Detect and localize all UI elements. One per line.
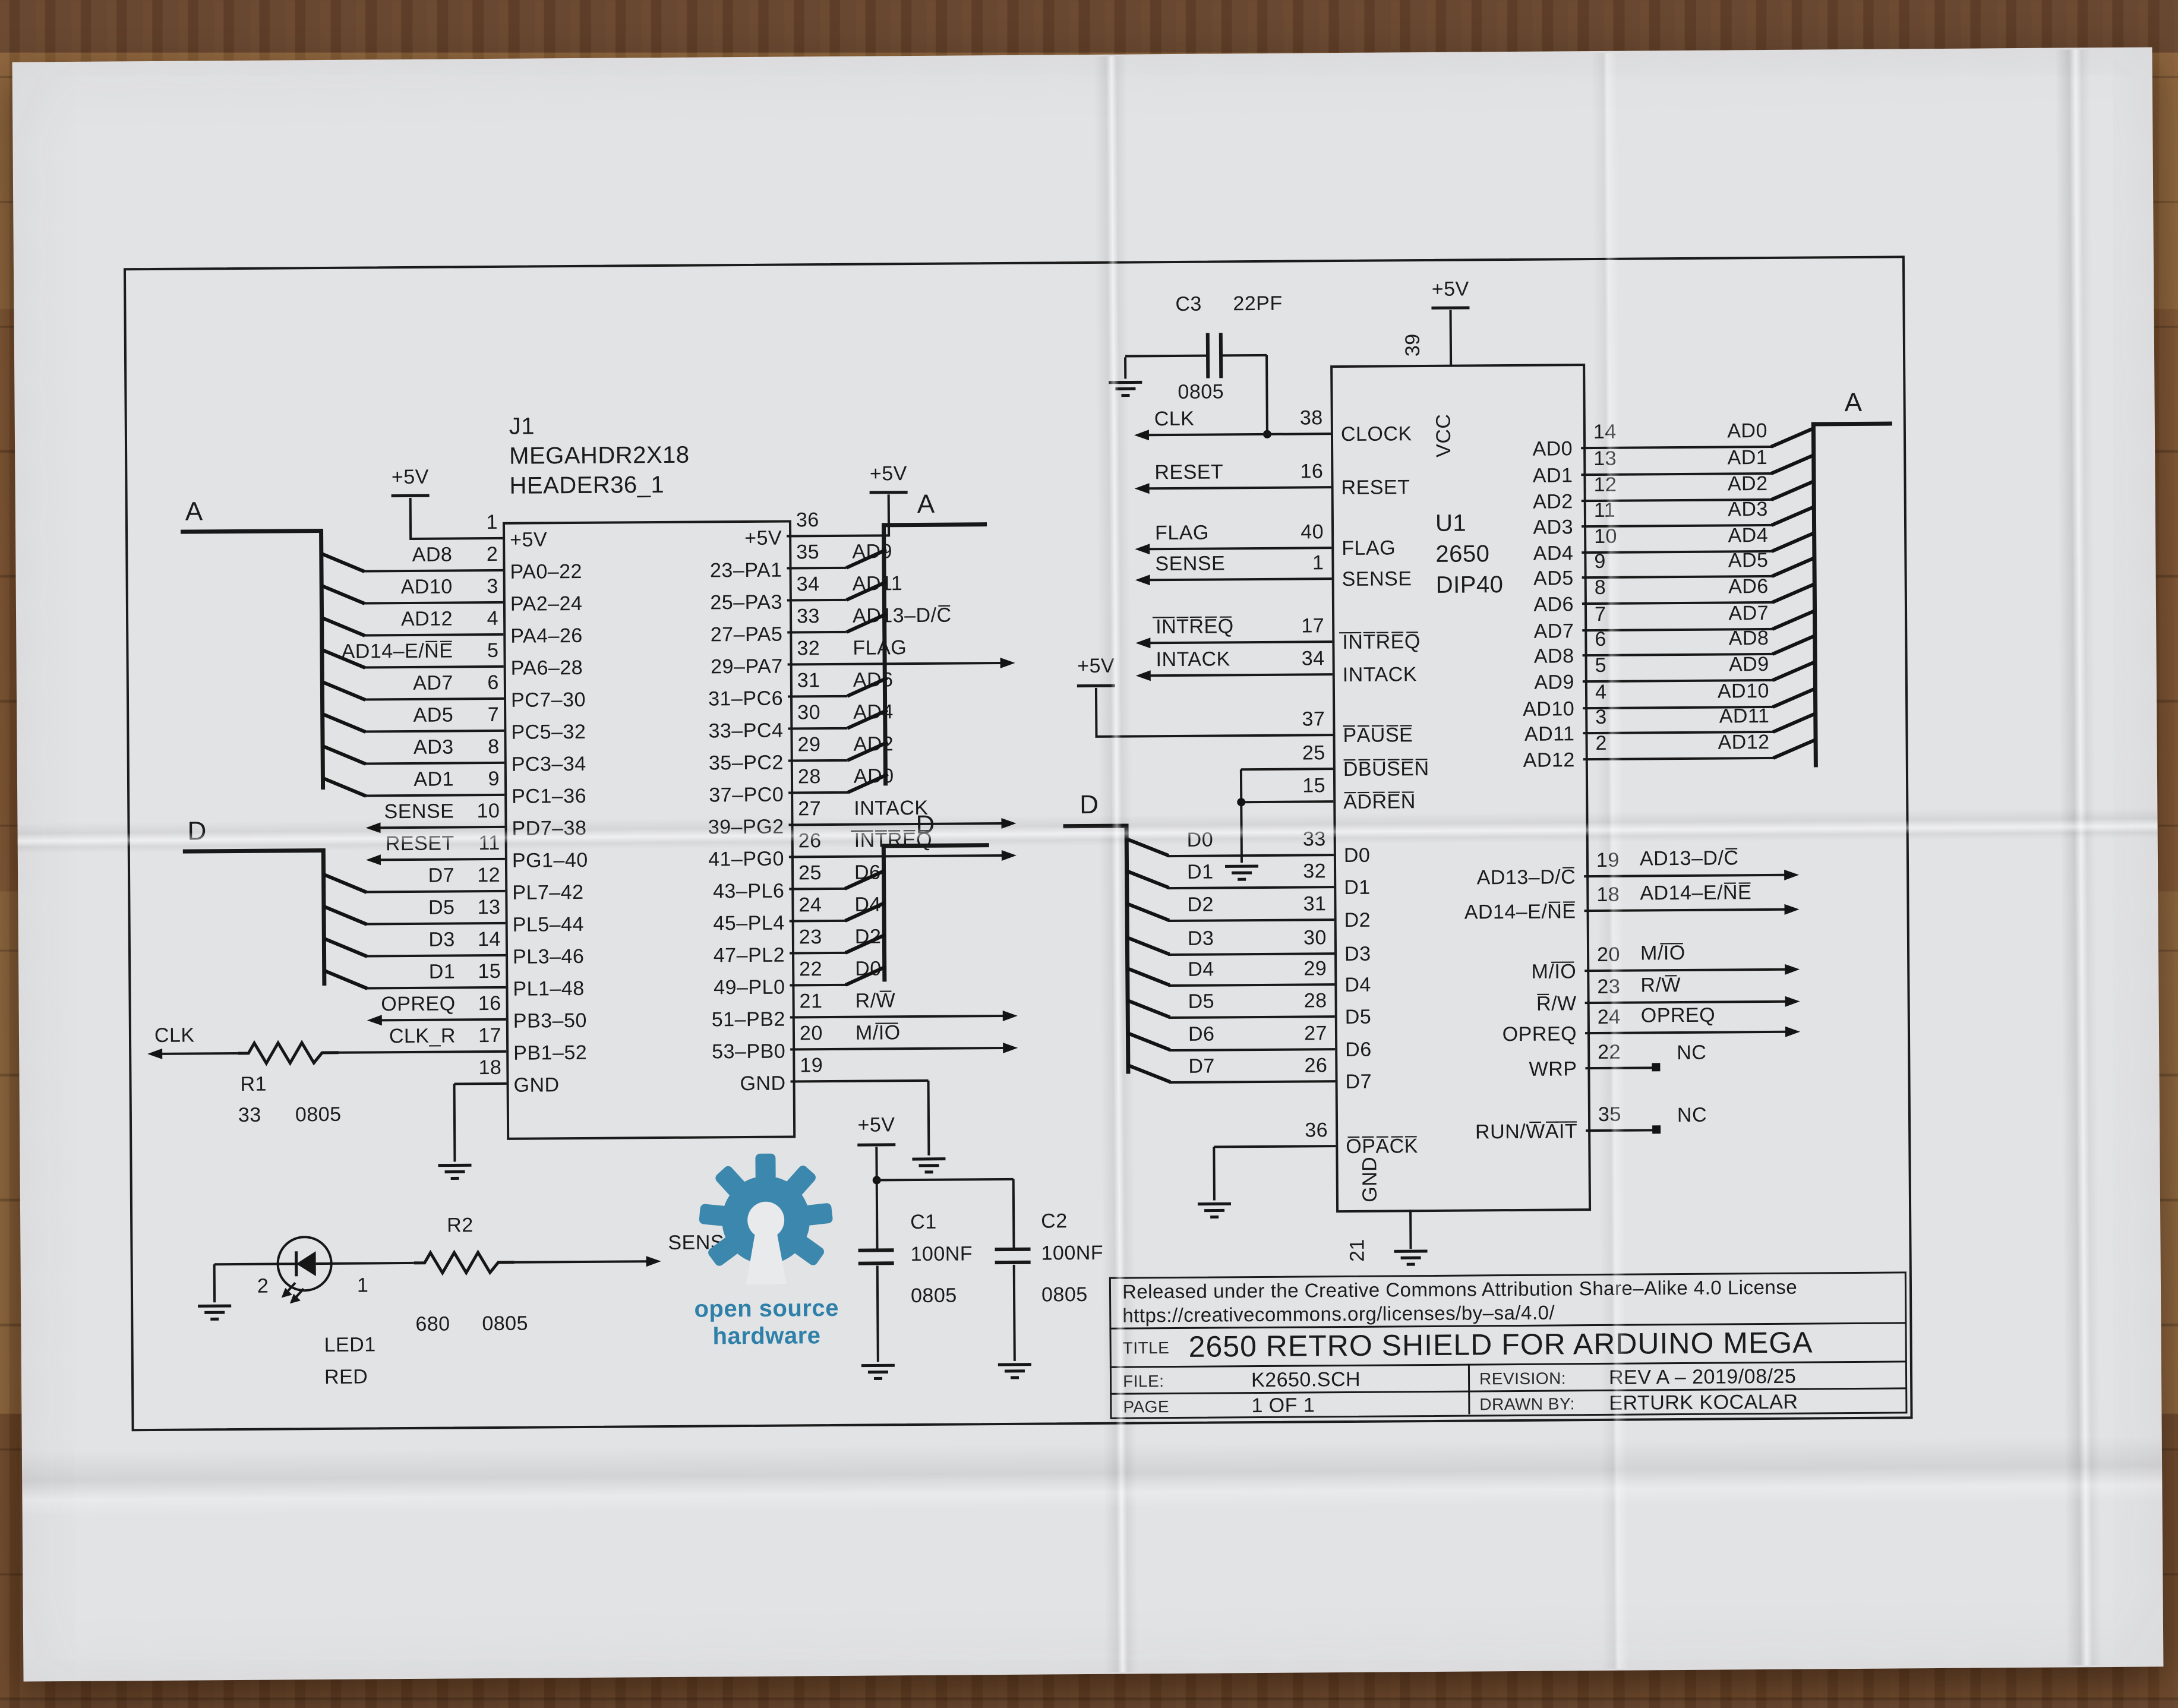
j1-row-12-left-pin-name: PL7–42: [512, 881, 584, 905]
title-label: TITLE: [1123, 1338, 1170, 1358]
j1-row-14-right-pin-name: 47–PL2: [602, 944, 785, 968]
j1-row-6-right-pin-number: 31: [797, 669, 820, 692]
u1-rpin-24-net-label: OPREQ: [1641, 1004, 1716, 1028]
u1-rpin-11-number: 11: [1594, 499, 1616, 522]
j1-row-18-wire-l: [454, 1082, 507, 1085]
led-gnd-symbol: [195, 1303, 233, 1327]
j1-row-17-left-pin-name: PB1–52: [513, 1041, 587, 1065]
r1-footprint: 0805: [295, 1103, 342, 1127]
j1-row-4-left-pin-number: 4: [449, 607, 498, 631]
u1-rpin-5-name: AD9: [1337, 671, 1574, 696]
u1-vcc-bar: [1431, 306, 1469, 309]
j1-row-16-right-pin-name: 51–PB2: [602, 1008, 785, 1033]
bus-d-label-left: D: [187, 816, 207, 847]
j1-row-9-left-pin-name: PC1–36: [512, 785, 586, 809]
j1-row-10-arrow-right: [1001, 818, 1016, 829]
u1-rpin-14-number: 14: [1593, 421, 1617, 444]
u1-rpin-6-net-label: AD8: [1628, 627, 1769, 651]
u1-lpin-30-number: 30: [1277, 926, 1327, 950]
r2-value: 680: [415, 1313, 450, 1336]
j1-row-8-left-net-label: AD3: [314, 735, 453, 760]
j1-row-14-left-net-label: D3: [315, 928, 455, 952]
u1-lpin-31-net-label: D2: [1187, 894, 1214, 917]
j1-row-5-right-pin-name: 29–PA7: [600, 655, 783, 680]
j1-row-14-left-pin-name: PL3–46: [513, 945, 585, 969]
c3-ref: C3: [1175, 293, 1202, 316]
schematic-title: 2650 RETRO SHIELD FOR ARDUINO MEGA: [1188, 1325, 1813, 1364]
j1-plus5v-right-drop: [888, 494, 890, 536]
u1-rpin-2-number: 2: [1595, 732, 1607, 755]
u1-gnd-symbol: [1392, 1249, 1430, 1273]
j1-row-15-left-pin-number: 15: [451, 960, 501, 984]
c2-ref: C2: [1041, 1210, 1068, 1233]
u1-rpin-7-number: 7: [1595, 603, 1606, 626]
j1-row-2-wire-r: [787, 567, 846, 570]
u1-rpin-35-nc-label: NC: [1677, 1104, 1707, 1127]
j1-plus5v-left-drop: [409, 498, 412, 540]
u1-rpin-4-net-label: AD10: [1629, 680, 1769, 704]
j1-row-16-right-net-label: R/W̅: [855, 989, 895, 1013]
j1-gnd-left-symbol: [435, 1163, 474, 1186]
j1-row-10-left-pin-name: PD7–38: [512, 817, 586, 841]
j1-gnd-right-symbol: [910, 1157, 948, 1180]
r1-net-in-label: CLK: [154, 1024, 195, 1048]
drawn-by-label: DRAWN BY:: [1479, 1394, 1575, 1414]
j1-row-17-left-net-label: CLK_R: [316, 1024, 456, 1049]
bus-a-u1-right-stub: [1811, 422, 1892, 427]
u1-rpin-9-name: AD5: [1336, 567, 1574, 592]
j1-row-15-right-pin-number: 22: [799, 958, 822, 981]
title-block-divider: [1468, 1364, 1470, 1415]
j1-row-16-right-pin-number: 21: [799, 990, 822, 1013]
plus5v-label-j1-left: +5V: [374, 466, 446, 490]
u1-rpin-11-net-label: AD3: [1628, 498, 1768, 522]
j1-row-13-wire-r: [790, 920, 847, 923]
u1-rpin-20-number: 20: [1597, 943, 1620, 967]
c3-footprint: 0805: [1178, 380, 1224, 404]
u1-rpin-24-name: OPREQ: [1339, 1022, 1577, 1047]
u1-lpin-37-number: 37: [1275, 708, 1325, 731]
u1-lpin-33-name: D0: [1344, 844, 1371, 867]
license-line2: https://creativecommons.org/licenses/by–…: [1122, 1302, 1555, 1327]
u1-rpin-6-number: 6: [1595, 628, 1606, 651]
u1-lpin-34-number: 34: [1274, 647, 1324, 671]
j1-row-11-left-net-label: RESET: [315, 832, 454, 856]
j1-row-18-right-pin-name: GND: [602, 1072, 785, 1097]
u1-rpin-23-number: 23: [1597, 975, 1620, 999]
j1-row-17-arrow-right: [1003, 1043, 1018, 1053]
j1-row-6-left-pin-name: PC7–30: [511, 689, 586, 712]
u1-gnd-wire: [1409, 1210, 1412, 1249]
u1-rpin-11-name: AD3: [1336, 516, 1573, 541]
j1-value: MEGAHDR2X18: [509, 441, 690, 470]
bus-a-j1-right-stub: [882, 522, 987, 527]
j1-row-2-right-pin-number: 35: [796, 541, 819, 564]
j1-row-11-right-net-label: I̅N̅T̅R̅E̅Q̅: [854, 829, 933, 853]
u1-lpin-33-number: 33: [1276, 828, 1326, 851]
j1-row-3-right-pin-number: 34: [797, 573, 820, 596]
j1-row-15-left-pin-name: PL1–48: [513, 977, 585, 1001]
u1-rpin-35-number: 35: [1598, 1103, 1621, 1126]
file-label: FILE:: [1123, 1372, 1164, 1391]
license-line1: Released under the Creative Commons Attr…: [1122, 1276, 1797, 1303]
c2-top-drop: [1012, 1179, 1015, 1249]
bus-a-label-left: A: [185, 497, 203, 527]
oshw-logo-text-line1: open source: [668, 1295, 864, 1323]
j1-row-12-left-net-label: D7: [315, 864, 454, 888]
u1-rpin-22-name: WRP: [1339, 1057, 1577, 1082]
u1-rpin-5-net-label: AD9: [1629, 653, 1769, 677]
u1-rpin-20-arrow-right: [1785, 964, 1800, 975]
j1-row-5-left-net-label: AD14–E/N̅E̅: [313, 639, 453, 664]
u1-rpin-8-name: AD6: [1336, 593, 1574, 618]
bus-a-label-j1-right: A: [917, 490, 935, 520]
j1-row-14-left-pin-number: 14: [451, 928, 501, 952]
bus-a-label-u1-right: A: [1844, 388, 1862, 418]
j1-row-14-wire-r: [790, 952, 847, 955]
j1-plus5v-right-bar: [870, 491, 908, 494]
j1-row-11-arrow-right: [1002, 850, 1017, 861]
adren-junction-dot: [1237, 798, 1245, 806]
j1-row-9-left-pin-number: 9: [450, 768, 500, 791]
u1-rpin-6-name: AD8: [1336, 645, 1574, 670]
u1-rpin-7-name: AD7: [1336, 620, 1574, 645]
drawn-by-value: ERTURK KOCALAR: [1609, 1391, 1798, 1415]
j1-row-10-left-net-label: SENSE: [314, 800, 454, 824]
sense-arrow-right: [646, 1256, 661, 1267]
j1-row-11-left-pin-name: PG1–40: [512, 849, 588, 873]
u1-lpin-26-net-label: D7: [1188, 1055, 1215, 1078]
j1-footprint: HEADER36_1: [509, 471, 664, 500]
u1-rpin-35-name: RUN/W̅A̅I̅T̅: [1340, 1120, 1577, 1145]
u1-rpin-3-number: 3: [1595, 706, 1607, 729]
u1-rpin-18-number: 18: [1596, 883, 1620, 907]
u1-rpin-7-net-label: AD7: [1628, 602, 1769, 626]
j1-row-5-left-pin-number: 5: [449, 639, 498, 663]
u1-lpin-29-net-label: D4: [1188, 958, 1214, 981]
u1-rpin-2-net-label: AD12: [1629, 731, 1769, 755]
j1-row-5-arrow-right: [1000, 658, 1015, 668]
oshw-logo-icon: [693, 1147, 839, 1293]
plus5v-label-u1-vcc: +5V: [1415, 277, 1486, 301]
pause-plus5v-bar: [1077, 684, 1115, 687]
fold-crease-horizontal-bottom: [22, 1436, 2163, 1516]
u1-rpin-2-name: AD12: [1337, 749, 1575, 774]
led1-symbol-icon: [269, 1228, 346, 1306]
u1-lpin-28-net-label: D5: [1188, 990, 1214, 1014]
u1-rpin-5-number: 5: [1595, 654, 1607, 677]
u1-gnd-pin-name: GND: [1358, 1157, 1382, 1202]
u1-rpin-18-arrow-right: [1784, 904, 1799, 915]
opack-gnd-symbol: [1195, 1201, 1233, 1225]
j1-row-5-right-net-label: FLAG: [853, 636, 907, 660]
u1-rpin-10-number: 10: [1594, 525, 1617, 548]
u1-lpin-32-number: 32: [1276, 860, 1326, 883]
u1-rpin-9-net-label: AD5: [1628, 549, 1768, 573]
j1-row-10-right-pin-number: 27: [798, 797, 821, 820]
u1-rpin-13-net-label: AD1: [1627, 446, 1767, 471]
j1-row-3-left-pin-number: 3: [449, 575, 498, 599]
u1-rpin-12-name: AD2: [1336, 490, 1573, 515]
u1-rpin-19-net-label: AD13–D/C̅: [1640, 847, 1739, 870]
u1-gnd-pin-number: 21: [1346, 1239, 1369, 1262]
j1-row-17-right-pin-number: 20: [800, 1022, 823, 1045]
j1-row-11-right-pin-name: 41–PG0: [601, 848, 784, 872]
u1-lpin-38-number: 38: [1273, 406, 1323, 430]
led-gnd-drop: [213, 1264, 216, 1302]
j1-row-12-right-pin-number: 25: [798, 861, 822, 885]
c1-footprint: 0805: [911, 1284, 957, 1308]
u1-rpin-14-net-label: AD0: [1627, 419, 1767, 444]
j1-row-15-left-net-label: D1: [315, 960, 455, 984]
u1-rpin-3-name: AD11: [1337, 722, 1574, 747]
j1-row-18-left-pin-name: GND: [513, 1074, 559, 1097]
j1-row-13-left-net-label: D5: [315, 896, 454, 920]
u1-lpin-15-name: A̅D̅R̅E̅N̅: [1343, 790, 1416, 814]
j1-row-4-right-pin-number: 33: [797, 605, 820, 628]
u1-rpin-35-wire: [1586, 1129, 1653, 1132]
j1-row-4-wire-r: [787, 631, 847, 634]
u1-lpin-28-number: 28: [1277, 989, 1327, 1013]
u1-lpin-16-net-label: RESET: [1154, 460, 1223, 484]
j1-row-8-wire-r: [788, 759, 848, 762]
j1-row-4-left-net-label: AD12: [313, 607, 453, 632]
j1-row-2-right-pin-name: 23–PA1: [599, 559, 782, 583]
j1-row-4-right-pin-name: 27–PA5: [599, 623, 782, 648]
j1-row-7-wire-r: [788, 727, 847, 730]
c2-plate-top: [995, 1248, 1030, 1251]
j1-row-10-left-pin-number: 10: [450, 800, 500, 823]
u1-rpin-14-name: AD0: [1335, 437, 1573, 462]
wiring-layer: 1+5V+5V36AD82PA0–2223–PA135AD9AD103PA2–2…: [0, 0, 2172, 8]
j1-row-5-left-pin-name: PA6–28: [511, 656, 583, 680]
page-value: 1 OF 1: [1251, 1394, 1315, 1417]
plus5v-label-pause: +5V: [1060, 654, 1132, 678]
j1-row-4-left-pin-name: PA4–26: [510, 624, 583, 648]
j1-row-18-right-pin-number: 19: [800, 1054, 823, 1077]
j1-row-8-left-pin-number: 8: [449, 735, 499, 759]
u1-lpin-30-net-label: D3: [1188, 927, 1214, 951]
c1-plate-bottom: [858, 1261, 894, 1265]
led-gnd-wire: [214, 1263, 279, 1266]
u1-lpin-17-number: 17: [1274, 614, 1324, 638]
j1-row-14-right-pin-number: 23: [799, 926, 822, 949]
u1-lpin-25-number: 25: [1276, 741, 1325, 765]
r2-ref: R2: [447, 1214, 474, 1237]
j1-row-13-left-pin-name: PL5–44: [513, 913, 585, 937]
j1-row-2-left-net-label: AD8: [313, 543, 452, 567]
plus5v-label-caps: +5V: [841, 1113, 912, 1137]
j1-row-16-arrow-right: [1003, 1011, 1018, 1021]
u1-lpin-36-number: 36: [1278, 1119, 1328, 1142]
fold-crease-vertical-edge: [2054, 49, 2101, 1665]
j1-row-9-right-pin-number: 28: [798, 765, 821, 788]
led1-value: RED: [324, 1365, 368, 1389]
u1-rpin-8-net-label: AD6: [1628, 575, 1769, 599]
j1-gnd-right-drop: [927, 1081, 930, 1155]
bus-d-label-u1: D: [1079, 790, 1099, 820]
pause-plus5v-drop: [1095, 688, 1098, 737]
u1-lpin-15-number: 15: [1276, 774, 1325, 798]
u1-rpin-24-number: 24: [1598, 1006, 1621, 1029]
j1-row-12-right-pin-name: 43–PL6: [601, 880, 784, 904]
j1-row-6-left-pin-number: 6: [449, 671, 499, 695]
u1-rpin-23-name: R̅/W: [1339, 992, 1577, 1017]
j1-row-3-wire-r: [787, 599, 847, 602]
u1-rpin-12-net-label: AD2: [1627, 472, 1767, 497]
j1-row-18-left-pin-number: 18: [452, 1056, 501, 1080]
u1-rpin-4-number: 4: [1595, 681, 1607, 704]
c1-gnd-symbol: [859, 1363, 897, 1387]
u1-rpin-10-name: AD4: [1336, 542, 1573, 567]
u1-vcc-wire: [1449, 310, 1452, 366]
j1-row-8-left-pin-name: PC3–34: [512, 753, 586, 776]
c2-gnd-symbol: [996, 1362, 1034, 1386]
oshw-logo-text-line2: hardware: [668, 1322, 864, 1350]
u1-lpin-40-net-label: FLAG: [1155, 522, 1209, 545]
dbusen-adren-gnd-symbol: [1223, 864, 1261, 888]
schematic: J1 MEGAHDR2X18 HEADER36_1 U1 2650 DIP40 …: [0, 0, 2178, 1708]
c2-value: 100NF: [1041, 1242, 1103, 1265]
j1-row-10-right-net-label: INTACK: [854, 797, 928, 820]
j1-row-7-left-net-label: AD5: [314, 703, 453, 728]
j1-row-15-right-pin-name: 49–PL0: [602, 976, 785, 1000]
led1-pin1-number: 1: [357, 1274, 369, 1297]
j1-ref: J1: [509, 412, 535, 440]
opack-drop: [1213, 1147, 1216, 1201]
u1-rpin-19-name: AD13–D/C̅: [1338, 866, 1576, 891]
u1-rpin-23-arrow-right: [1785, 996, 1800, 1007]
c2-plate-bottom: [995, 1261, 1031, 1264]
j1-row-1-left-pin-number: 1: [448, 511, 498, 535]
u1-rpin-13-name: AD1: [1335, 464, 1573, 489]
u1-rpin-18-net-label: AD14–E/N̅E̅: [1640, 881, 1751, 905]
u1-lpin-32-net-label: D1: [1187, 861, 1214, 884]
u1-rpin-18-name: AD14–E/N̅E̅: [1338, 900, 1576, 925]
u1-rpin-22-nc-square: [1652, 1063, 1660, 1071]
clk-arrow-left: [147, 1049, 162, 1059]
j1-row-11-left-pin-number: 11: [450, 832, 500, 855]
c3-gnd-stub: [1124, 358, 1126, 379]
j1-row-1-left-pin-name: +5V: [510, 528, 547, 552]
u1-lpin-29-number: 29: [1277, 957, 1327, 981]
u1-rpin-22-nc-label: NC: [1677, 1041, 1706, 1065]
c3-plate-left: [1206, 333, 1210, 378]
paper-sheet: J1 MEGAHDR2X18 HEADER36_1 U1 2650 DIP40 …: [12, 47, 2164, 1681]
j1-row-9-wire-r: [788, 791, 848, 794]
file-value: K2650.SCH: [1251, 1368, 1361, 1392]
u1-lpin-26-number: 26: [1277, 1054, 1327, 1078]
u1-rpin-19-arrow-right: [1784, 870, 1799, 880]
u1-rpin-9-number: 9: [1594, 550, 1606, 573]
u1-lpin-34-net-label: INTACK: [1156, 648, 1230, 671]
u1-lpin-17-net-label: I̅N̅T̅R̅E̅Q̅: [1156, 615, 1234, 639]
j1-row-16-left-net-label: OPREQ: [315, 992, 455, 1016]
j1-row-17-left-pin-number: 17: [452, 1024, 501, 1048]
j1-row-5-right-pin-number: 32: [797, 637, 820, 660]
c3-gnd-symbol: [1106, 380, 1144, 403]
u1-rpin-20-name: M/I̅O̅: [1339, 960, 1576, 985]
u1-rpin-12-number: 12: [1593, 473, 1617, 497]
j1-row-9-left-net-label: AD1: [314, 768, 454, 792]
u1-rpin-24-arrow-right: [1785, 1027, 1800, 1037]
u1-lpin-38-net-label: CLK: [1154, 408, 1195, 431]
j1-row-17-right-pin-name: 53–PB0: [602, 1040, 785, 1065]
j1-row-7-left-pin-name: PC5–32: [511, 721, 586, 744]
j1-row-3-right-pin-name: 25–PA3: [599, 591, 782, 615]
j1-row-1-right-pin-number: 36: [796, 509, 819, 532]
u1-rpin-22-wire: [1585, 1066, 1653, 1069]
revision-label: REVISION:: [1479, 1369, 1566, 1388]
j1-row-12-wire-r: [789, 888, 846, 891]
j1-row-8-right-pin-name: 35–PC2: [601, 752, 784, 776]
u1-lpin-16-number: 16: [1273, 460, 1323, 484]
c1-value: 100NF: [910, 1242, 973, 1266]
c2-footprint: 0805: [1041, 1283, 1088, 1307]
j1-row-13-left-pin-number: 13: [450, 896, 500, 920]
u1-rpin-8-number: 8: [1595, 576, 1606, 599]
led1-pin2-number: 2: [257, 1275, 269, 1298]
u1-vcc-pin-number: 39: [1402, 333, 1425, 356]
led1-ref: LED1: [324, 1333, 375, 1357]
j1-row-3-left-pin-name: PA2–24: [510, 592, 583, 616]
plus5v-label-j1-right: +5V: [853, 462, 924, 486]
u1-rpin-35-nc-square: [1652, 1125, 1661, 1134]
j1-row-2-left-pin-name: PA0–22: [510, 560, 582, 584]
j1-row-6-wire-r: [788, 695, 847, 698]
u1-rpin-13-number: 13: [1593, 447, 1617, 471]
c1-ref: C1: [910, 1211, 937, 1234]
j1-row-11-right-pin-number: 26: [798, 829, 822, 853]
u1-lpin-31-number: 31: [1276, 892, 1326, 916]
r2-symbol-icon: [413, 1248, 514, 1278]
j1-row-17-right-net-label: M/I̅O̅: [856, 1021, 901, 1045]
j1-row-7-right-pin-name: 33–PC4: [600, 719, 783, 744]
bus-d-u1-stub: [1063, 824, 1126, 829]
j1-row-8-right-pin-number: 29: [797, 733, 820, 756]
c3-right-wire: [1223, 354, 1267, 357]
u1-lpin-27-number: 27: [1277, 1022, 1327, 1046]
r1-value: 33: [238, 1104, 261, 1127]
page-label: PAGE: [1123, 1397, 1169, 1417]
r2-footprint: 0805: [482, 1312, 528, 1336]
u1-lpin-40-number: 40: [1274, 520, 1324, 544]
j1-row-12-left-pin-number: 12: [450, 864, 500, 888]
j1-row-16-left-pin-number: 16: [451, 992, 501, 1016]
j1-row-1-right-pin-name: +5V: [599, 527, 782, 551]
u1-lpin-1-number: 1: [1274, 551, 1324, 575]
j1-row-10-right-pin-name: 39–PG2: [601, 816, 784, 840]
j1-row-2-left-pin-number: 2: [448, 543, 498, 567]
u1-rpin-19-number: 19: [1596, 849, 1620, 872]
u1-lpin-27-net-label: D6: [1188, 1023, 1215, 1046]
u1-rpin-23-net-label: R/W̅: [1640, 974, 1681, 997]
j1-row-13-right-pin-number: 24: [798, 894, 822, 917]
u1-rpin-22-number: 22: [1598, 1041, 1621, 1064]
j1-plus5v-left-bar: [392, 494, 430, 497]
caps-plus5v-bar: [857, 1143, 895, 1146]
u1-rpin-3-net-label: AD11: [1629, 705, 1769, 729]
j1-row-6-right-pin-name: 31–PC6: [600, 687, 783, 712]
j1-row-9-right-pin-name: 37–PC0: [601, 784, 784, 808]
j1-row-3-left-net-label: AD10: [313, 575, 453, 599]
c1-plate-top: [858, 1248, 894, 1252]
r1-ref: R1: [240, 1073, 267, 1096]
revision-value: REV A – 2019/08/25: [1609, 1365, 1797, 1390]
j1-row-13-right-pin-name: 45–PL4: [602, 912, 785, 936]
j1-row-6-left-net-label: AD7: [314, 671, 453, 696]
j1-row-15-wire-r: [790, 984, 847, 987]
